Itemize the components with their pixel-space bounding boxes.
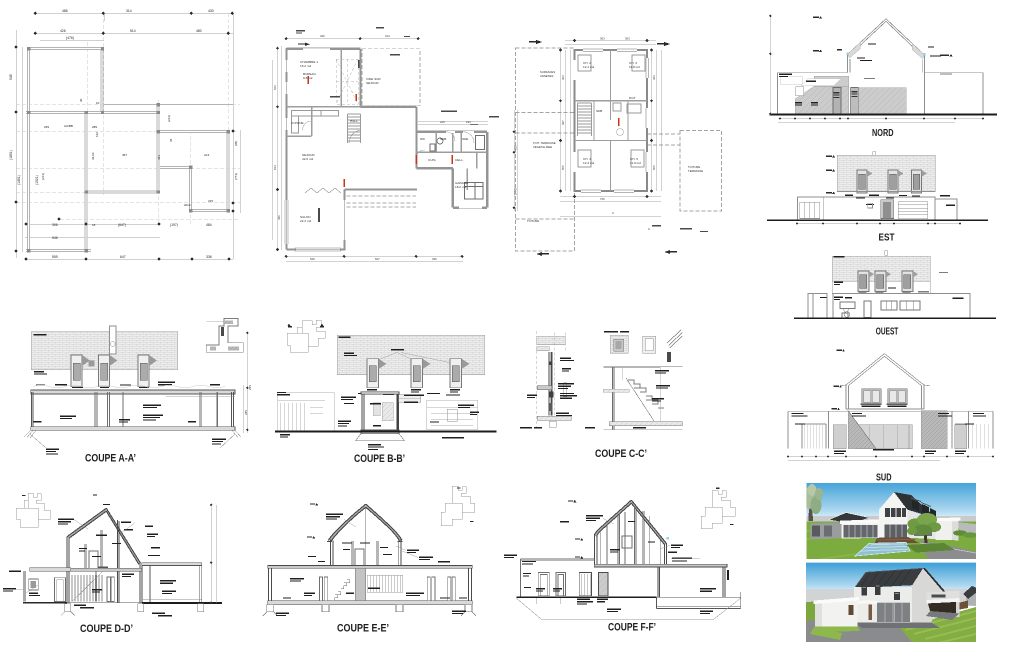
svg-text:306: 306 xyxy=(52,223,58,227)
svg-text:505: 505 xyxy=(652,165,656,170)
svg-text:336: 336 xyxy=(432,257,437,261)
svg-text:COUPE D-D’: COUPE D-D’ xyxy=(80,623,133,635)
svg-text:505: 505 xyxy=(561,165,565,170)
svg-text:A13: A13 xyxy=(204,153,210,157)
svg-text:446: 446 xyxy=(277,215,281,220)
svg-text:COUPE C-C’: COUPE C-C’ xyxy=(595,448,647,460)
svg-text:11.9 m2: 11.9 m2 xyxy=(630,161,641,165)
svg-text:AA/BB: AA/BB xyxy=(64,124,73,128)
svg-text:35: 35 xyxy=(169,138,173,142)
svg-text:SEJOUR: SEJOUR xyxy=(366,81,379,85)
svg-text:VEGETALISEE: VEGETALISEE xyxy=(533,145,552,149)
svg-text:426: 426 xyxy=(320,34,325,38)
svg-text:TERRASSE: TERRASSE xyxy=(688,169,703,173)
svg-text:315: 315 xyxy=(208,199,213,203)
svg-text:423: 423 xyxy=(561,75,565,80)
svg-text:(213): (213) xyxy=(167,115,171,122)
svg-text:430: 430 xyxy=(208,9,214,13)
svg-text:423: 423 xyxy=(652,75,656,80)
svg-text:(1521): (1521) xyxy=(35,175,39,185)
svg-text:314: 314 xyxy=(126,9,132,13)
svg-text:546: 546 xyxy=(52,236,58,240)
svg-text:647: 647 xyxy=(375,257,380,261)
svg-text:42.6 m2: 42.6 m2 xyxy=(302,157,313,161)
svg-text:20x4: 20x4 xyxy=(184,203,191,207)
svg-text:22.4 m2: 22.4 m2 xyxy=(300,219,311,223)
svg-text:545: 545 xyxy=(9,74,13,80)
svg-text:COUPE F-F’: COUPE F-F’ xyxy=(608,622,656,634)
svg-text:SUD: SUD xyxy=(876,473,892,484)
svg-text:SDE: SDE xyxy=(462,137,468,141)
svg-text:HALL: HALL xyxy=(350,119,358,123)
svg-text:TOITURE: TOITURE xyxy=(527,219,539,223)
svg-text:229: 229 xyxy=(440,120,445,124)
svg-text:484: 484 xyxy=(206,223,212,227)
svg-text:269: 269 xyxy=(44,125,49,129)
svg-text:726: 726 xyxy=(600,197,605,201)
svg-text:363: 363 xyxy=(625,37,630,41)
svg-text:546: 546 xyxy=(310,257,315,261)
svg-text:192: 192 xyxy=(95,132,99,137)
svg-text:457: 457 xyxy=(122,153,127,157)
svg-text:30: 30 xyxy=(79,98,83,102)
svg-text:(647): (647) xyxy=(118,223,126,227)
svg-text:255: 255 xyxy=(248,385,252,390)
svg-text:NORD: NORD xyxy=(872,128,894,139)
svg-text:CELL.: CELL. xyxy=(455,158,464,162)
svg-text:COUPE A-A’: COUPE A-A’ xyxy=(85,453,136,465)
svg-text:DGT: DGT xyxy=(629,96,636,100)
svg-text:426: 426 xyxy=(60,29,66,33)
svg-text:559: 559 xyxy=(52,255,58,259)
svg-text:ANNEXES: ANNEXES xyxy=(540,74,554,78)
svg-text:C: C xyxy=(612,211,614,215)
svg-text:COUPE E-E’: COUPE E-E’ xyxy=(337,623,389,635)
svg-text:363: 363 xyxy=(600,37,605,41)
svg-text:814: 814 xyxy=(273,165,277,170)
svg-text:39,04: 39,04 xyxy=(91,152,95,160)
svg-text:(95): (95) xyxy=(234,141,238,146)
svg-text:480: 480 xyxy=(196,29,202,33)
svg-text:289: 289 xyxy=(92,125,97,129)
svg-text:(197): (197) xyxy=(170,223,178,227)
svg-text:647: 647 xyxy=(120,255,126,259)
svg-text:(774): (774) xyxy=(234,173,238,180)
svg-text:(1451): (1451) xyxy=(17,175,21,185)
svg-text:15.2 m2: 15.2 m2 xyxy=(300,64,311,68)
svg-text:CUIS.: CUIS. xyxy=(428,158,436,162)
svg-text:18.2 m2: 18.2 m2 xyxy=(455,185,466,189)
svg-text:12.1 m2: 12.1 m2 xyxy=(583,65,594,69)
svg-text:285: 285 xyxy=(244,410,248,415)
svg-text:194: 194 xyxy=(466,120,471,124)
svg-text:SDB: SDB xyxy=(596,109,602,113)
svg-text:EST: EST xyxy=(879,233,895,244)
svg-text:514: 514 xyxy=(130,29,136,33)
svg-text:OUEST: OUEST xyxy=(876,326,899,337)
svg-text:18: 18 xyxy=(92,223,96,227)
svg-text:336: 336 xyxy=(206,255,212,259)
svg-text:397: 397 xyxy=(561,120,565,125)
svg-text:(1851): (1851) xyxy=(9,150,13,160)
svg-text:COUPE B-B’: COUPE B-B’ xyxy=(354,453,405,465)
svg-text:314: 314 xyxy=(385,34,390,38)
svg-text:486: 486 xyxy=(62,9,68,13)
svg-text:(213): (213) xyxy=(41,173,45,180)
svg-text:CUISINE: CUISINE xyxy=(291,121,304,125)
svg-text:12.4 m2: 12.4 m2 xyxy=(583,161,594,165)
svg-text:SDB: SDB xyxy=(440,137,446,141)
svg-text:(476): (476) xyxy=(66,36,74,40)
svg-text:10: 10 xyxy=(96,101,100,105)
svg-text:WC: WC xyxy=(420,137,426,141)
svg-text:C: C xyxy=(648,227,650,231)
svg-text:523: 523 xyxy=(273,85,277,90)
svg-text:11.8 m2: 11.8 m2 xyxy=(629,65,640,69)
svg-text:461: 461 xyxy=(157,155,161,160)
